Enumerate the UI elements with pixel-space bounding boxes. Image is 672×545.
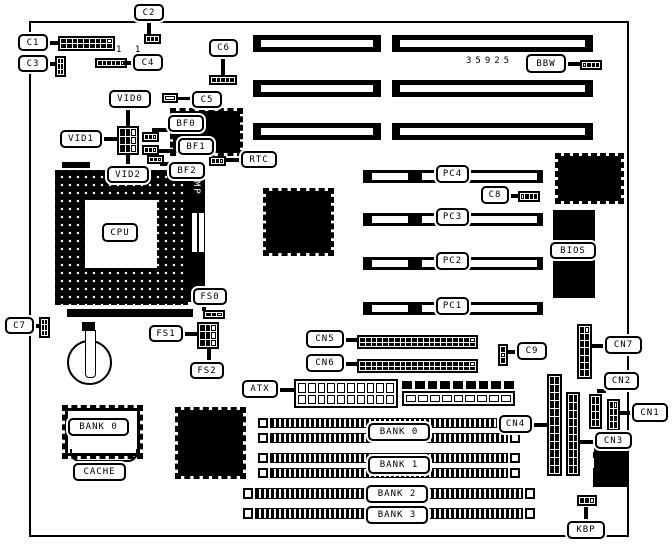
cn4-header-pin [550,466,554,473]
cn5-header-pin [447,343,452,347]
cn4-header-pin [555,450,559,457]
bbw-conn-pin [596,63,599,67]
cn6-stem [343,362,358,366]
cn4-header-pin [555,442,559,449]
vid0-label: VID0 [109,90,151,108]
cn6-header-pin [372,367,377,371]
cn2-header-pin [596,405,599,412]
cn5-header-pin [424,338,429,342]
cn4-header-pin [555,417,559,424]
fs0-conn [203,310,225,319]
cn3-header-pin [574,435,578,442]
cn3-header-pin [569,427,573,434]
cn5-header-pin [453,343,458,347]
chip-chipset-south [555,153,624,204]
atx-power-conn-pin [347,395,355,405]
cn6-header-pin [441,367,446,371]
cn5-header-pin [464,338,469,342]
bf2-conn-pin [154,158,157,161]
atx-power-conn-pin [327,395,335,405]
bbw-conn-pin [592,63,595,67]
cn4-header-pin [550,417,554,424]
c2-conn-pin [155,37,158,41]
bf1-stem [157,149,179,153]
fs2-stem [207,349,211,363]
c1-header-pin [90,44,95,48]
cn6-header-pin [377,367,382,371]
cn7-stem [591,344,606,348]
fs1-label: FS1 [149,325,183,342]
cn5-header-pin [377,338,382,342]
fs0-conn-pin [217,313,222,316]
c3-conn-pin [61,70,63,74]
atx-power-conn-pin [308,383,316,393]
atx-power-conn-pin [298,383,306,393]
simm-2-latch [510,433,520,443]
cn5-header-pin [435,338,440,342]
cn7-header-pin [580,327,584,333]
atx-label: ATX [242,380,278,398]
cn3-header-pin [574,450,578,457]
cn3-header-pin [574,395,578,402]
rtc-label: RTC [241,151,277,168]
atx-power-conn-pin [367,383,375,393]
cn6-header-pin [360,362,365,366]
cn7-header [577,324,592,379]
c8-conn-pin [534,194,537,199]
isa-a3-slot-opening [261,128,373,135]
cn5-header-pin [406,343,411,347]
c4-header-pin [116,61,120,65]
c8-conn-pin [525,194,528,199]
cn6-header-pin [389,362,394,366]
bbw-conn-pin [587,63,590,67]
isa-b3-slot-opening [400,128,585,135]
cn4-header-pin [550,426,554,433]
at-power-pins-pin [466,381,476,389]
cn7-header-pin [585,356,589,362]
cn3-header-pin [574,466,578,473]
at-power-body [402,391,515,406]
cn6-header-pin [424,367,429,371]
atx-power-conn-pin [337,383,345,393]
cn4-header-pin [555,409,559,416]
cn1-header-pin [610,409,613,415]
atx-power-conn-pin [327,383,335,393]
cn2-header-pin [592,397,595,404]
atx-power-conn-pin [376,395,384,405]
cpu-label: CPU [102,223,138,242]
c6-label: C6 [209,39,238,57]
cn3-header-pin [574,419,578,426]
atx-power-conn [294,379,398,408]
cn7-label: CN7 [605,336,642,354]
cn1-header-pin [610,402,613,408]
cn1-header-pin [610,416,613,422]
c2-conn [144,34,161,44]
c3-conn [55,56,66,77]
c3-stem [48,62,57,66]
c1-label: C1 [18,34,48,51]
c7-conn-pin [45,331,47,335]
at-power-pins-pin [415,381,425,389]
cn6-header-pin [360,367,365,371]
cn6-header-pin [366,362,371,366]
cn6-header-pin [464,367,469,371]
cn5-header-pin [470,338,475,342]
cn5-header-pin [360,343,365,347]
at-power-body-pin [442,395,452,402]
cn7-header-pin [580,356,584,362]
bf0-conn-pin [145,135,148,139]
bf2-label: BF2 [169,162,205,179]
cn4-header-pin [550,393,554,400]
cache-brace [70,449,138,462]
c8-conn-pin [530,194,533,199]
atx-power-conn-pin [318,395,326,405]
at-power-body-pin [477,395,487,402]
socket-tab-top [62,162,90,168]
bios-label: BIOS [550,242,596,259]
cn6-header-pin [418,362,423,366]
cn5-header-pin [377,343,382,347]
c2-conn-pin [151,37,154,41]
simm-5-latch [525,488,535,499]
cn7-header-pin [580,370,584,376]
cn5-stem [343,338,358,342]
c8-label: C8 [481,186,509,204]
c6-conn-pin [226,78,230,82]
bf1-conn-pin [145,148,148,152]
bank0-cache-label: BANK 0 [68,418,129,436]
vid-jumper-block-pin [131,137,136,144]
cn5-header-pin [470,343,475,347]
cn3-header-pin [569,419,573,426]
bf1-label: BF1 [178,138,214,155]
c7-conn-pin [42,331,44,335]
cn3-header-pin [574,442,578,449]
bbw-conn-pin [583,63,586,67]
c7-conn-pin [42,320,44,324]
cn5-header-pin [395,338,400,342]
cn5-header-pin [430,343,435,347]
c2-stem [147,21,151,35]
c4-header-pin [98,61,102,65]
cn1-header-pin [614,416,617,422]
cn5-header-pin [406,338,411,342]
bf1-conn-pin [149,148,152,152]
cn3-header-pin [574,427,578,434]
cn6-header-pin [383,367,388,371]
fs1-jumper-block-pin [211,340,216,346]
atx-power-conn-pin [376,383,384,393]
vid1-stem [102,137,118,141]
vid-jumper-block-pin [120,137,125,144]
fs1-jumper-block-pin [206,332,211,338]
socket-lever [67,309,193,317]
cn5-header [357,335,478,349]
isa-b1-slot-opening [400,40,585,47]
at-power-body-pin [418,395,428,402]
at-power-body-pin [465,395,475,402]
cn5-header-pin [412,343,417,347]
cn5-header-pin [459,343,464,347]
at-power-pins-pin [504,381,514,389]
battery-clip [85,330,96,378]
kbp-conn [577,495,597,506]
cn2-header-pin [596,420,599,427]
cn3-header-pin [569,411,573,418]
cn5-header-pin [418,338,423,342]
isa-b3-isa-slot [392,123,593,140]
vid2-label: VID2 [107,166,149,183]
c7-conn-pin [45,320,47,324]
bbw-stem [565,62,581,66]
at-power-body-pin [430,395,440,402]
pci-4-slot-opening [372,173,408,180]
cn3-header-pin [574,458,578,465]
at-power-pins-pin [453,381,463,389]
cn3-header-pin [569,466,573,473]
c3-conn-pin [58,64,60,68]
cn5-header-pin [418,343,423,347]
cn6-header-pin [447,362,452,366]
isa-a2-slot-opening [261,85,373,92]
cn4-header-pin [555,426,559,433]
cn6-header-pin [459,367,464,371]
cn2-header-pin [592,420,595,427]
motherboard-diagram: MP359251 1C1C2C3C4C5C6C7C8C9VID0VID1VID2… [0,0,672,545]
cn3-header-pin [569,403,573,410]
vid-jumper-block-pin [120,145,125,152]
kbd-notch-1 [586,443,594,452]
isa-a1-isa-slot [253,35,381,52]
c4-header-pin [107,61,111,65]
c3-conn-pin [61,59,63,63]
pc1-label: PC1 [436,297,469,315]
bbw-label: BBW [526,54,566,73]
kbp-label: KBP [567,521,605,539]
cn2-stem [597,389,606,393]
fs1-jumper-block-pin [200,332,205,338]
cn6-header-pin [412,367,417,371]
fs0-label: FS0 [193,288,227,305]
cn5-header-pin [459,338,464,342]
cn4-header-pin [550,409,554,416]
simm-2-latch [258,433,268,443]
c7-label: C7 [5,317,34,334]
c9-conn [498,344,508,366]
c5-label: C5 [192,91,222,108]
cn4-header-pin [550,450,554,457]
simm-3-latch [258,453,268,463]
cn1-header-pin [614,402,617,408]
cn5-header-pin [372,338,377,342]
cn1-stem [619,411,633,415]
bank3-label: BANK 3 [366,506,428,524]
fs1-jumper-block-pin [211,325,216,331]
cn7-header-pin [580,334,584,340]
cn5-header-pin [435,343,440,347]
kbp-conn-pin [580,498,584,503]
c2-conn-pin [147,37,150,41]
cn3-header-pin [569,450,573,457]
cn5-header-pin [360,338,365,342]
c1-header-pin [101,44,106,48]
cn7-header-pin [585,370,589,376]
c8-conn-pin [521,194,524,199]
cn4-label: CN4 [499,415,532,433]
fs0-conn-pin [206,313,211,316]
c1-header-pin [84,44,89,48]
kbp-conn-pin [590,498,594,503]
cn5-header-pin [412,338,417,342]
at-power-pins [402,381,514,389]
atx-power-conn-pin [357,395,365,405]
atx-power-conn-pin [386,395,394,405]
cn5-header-pin [447,338,452,342]
at-power-body-pin [501,395,511,402]
cn2-header [589,394,602,429]
fs1-jumper-block [197,322,219,349]
cn4-header [547,374,562,476]
cn7-header-pin [585,341,589,347]
cn5-header-pin [401,343,406,347]
cn3-header-pin [574,403,578,410]
cn6-label: CN6 [306,354,344,372]
cn4-header-pin [550,458,554,465]
fs1-stem [183,332,198,336]
cn6-header-pin [401,362,406,366]
cn4-header-pin [550,401,554,408]
c1-header-pin [67,39,72,43]
at-power-pins-pin [479,381,489,389]
c1-header [58,36,115,51]
chip-chipset-north [263,188,334,256]
cache-label: CACHE [73,463,126,481]
simm-4-latch [258,468,268,478]
cn7-header-pin [585,348,589,354]
simm-3-latch [510,453,520,463]
isa-a3-isa-slot [253,123,381,140]
c1-header-pin [78,39,83,43]
c5-rect-pin [165,96,175,100]
cn7-header-pin [580,341,584,347]
cn5-header-pin [366,343,371,347]
cn5-header-pin [453,338,458,342]
c8-stem [509,194,520,198]
c3-conn-pin [61,64,63,68]
cn3-stem [580,440,596,444]
cn2-header-pin [596,412,599,419]
kbd-notch-2 [586,458,594,468]
simm-4-latch [510,468,520,478]
cn5-header-pin [372,343,377,347]
bank1-label: BANK 1 [368,456,430,474]
cn6-header-pin [435,362,440,366]
cn6-header-pin [424,362,429,366]
atx-power-conn-pin [386,383,394,393]
cn5-header-pin [383,338,388,342]
cn7-header-pin [585,363,589,369]
isa-b2-slot-opening [400,85,585,92]
bbw-conn [580,60,602,70]
c4-stem [124,61,133,65]
cn3-header-pin [574,411,578,418]
isa-a1-slot-opening [261,40,373,47]
cn6-header-pin [395,362,400,366]
c1-header-pin [67,44,72,48]
cn6-header-pin [447,367,452,371]
cn4-header-pin [555,434,559,441]
cn4-header-pin [555,401,559,408]
cn6-header-pin [418,367,423,371]
cn6-header-pin [401,367,406,371]
cn6-header-pin [459,362,464,366]
c1-header-pin [90,39,95,43]
cn7-header-pin [585,327,589,333]
cn4-header-pin [555,393,559,400]
cn6-header-pin [470,367,475,371]
cn5-header-pin [430,338,435,342]
simm-6-latch [243,508,253,519]
cn2-label: CN2 [604,372,639,390]
bf1-conn-pin [153,148,156,152]
vid-jumper-block [117,126,139,155]
c9-conn-pin [501,353,505,358]
cn4-header-pin [550,442,554,449]
c1-header-pin [107,39,112,43]
cn5-header-pin [401,338,406,342]
cn4-stem [531,423,548,427]
vid-jumper-block-pin [131,129,136,136]
c1-header-pin [107,44,112,48]
bf0-conn-pin [149,135,152,139]
c2-label: C2 [134,4,164,21]
at-power-pins-pin [402,381,412,389]
cn5-header-pin [366,338,371,342]
c1-header-pin [73,39,78,43]
pci-1-slot-opening [372,305,408,312]
cn6-header-pin [430,362,435,366]
at-power-body-pin [454,395,464,402]
c9-conn-pin [501,347,505,352]
c4-header [95,58,127,68]
cn1-label: CN1 [632,403,668,422]
isa-b2-isa-slot [392,80,593,97]
c9-conn-pin [501,358,505,363]
cn6-header-pin [453,367,458,371]
pci-2-slot-opening [372,260,408,267]
atx-power-conn-pin [357,383,365,393]
cn3-header-pin [569,458,573,465]
fs1-jumper-block-pin [206,340,211,346]
mp-dip-2 [199,213,204,252]
cn6-header-pin [372,362,377,366]
kbp-conn-pin [585,498,589,503]
simm-1-latch [258,418,268,428]
pci-3-slot-opening [372,216,408,223]
vid-jumper-block-pin [126,145,131,152]
cn5-header-pin [441,343,446,347]
vid-jumper-block-pin [131,145,136,152]
c6-conn-pin [230,78,234,82]
cn1-header-pin [614,422,617,428]
c7-conn-pin [42,325,44,329]
cn1-header [607,399,620,431]
vid-jumper-block-pin [126,129,131,136]
c3-label: C3 [18,55,48,72]
